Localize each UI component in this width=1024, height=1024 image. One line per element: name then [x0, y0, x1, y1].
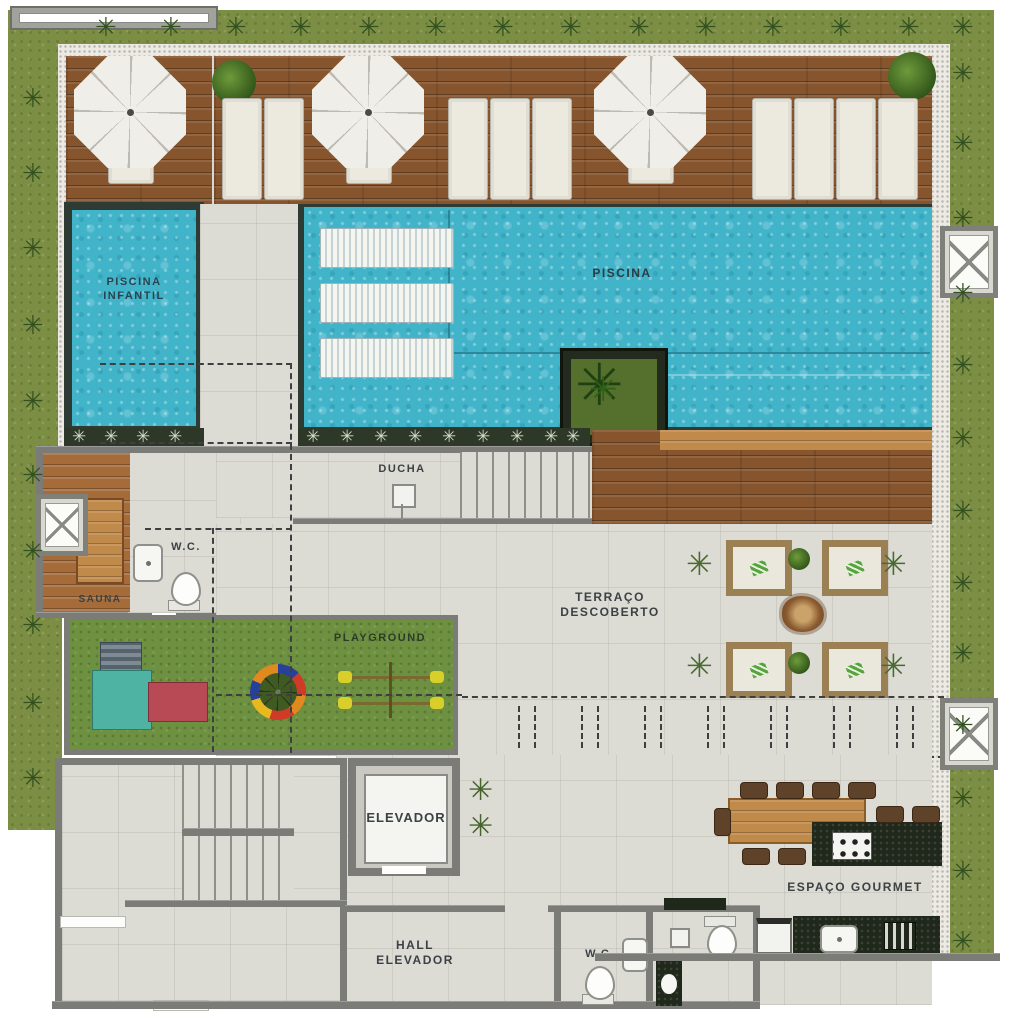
palm-plant-icon: ✳ — [22, 235, 44, 261]
in-pool-lounger — [320, 283, 454, 323]
pool-walkway — [200, 204, 300, 448]
wall — [52, 1001, 760, 1009]
cooktop-icon — [832, 832, 872, 860]
shower-valve-icon — [392, 484, 416, 508]
piscina-label: PISCINA — [570, 266, 674, 281]
palm-plant-icon: ✳ — [952, 130, 974, 156]
projection-line — [216, 694, 462, 696]
palm-plant-icon: ✳ — [952, 60, 974, 86]
palm-plant-icon: ✳ — [290, 14, 312, 40]
service-shaft-marker — [36, 494, 88, 556]
hedge-plant-icon: ✳ — [136, 428, 150, 445]
terrace-plant-icon: ✳ — [880, 650, 907, 682]
kids-pool — [72, 210, 196, 426]
projection-line — [100, 363, 292, 365]
wc-upper-label: W.C. — [158, 541, 214, 555]
stairs — [460, 452, 592, 518]
hedge-plant-icon: ✳ — [306, 428, 320, 445]
sauna-label: SAUNA — [60, 594, 140, 607]
leisure-floor-plan: ✳ ✳ SAUNA W.C. ♿ DUCHA TERRAÇO DESCOBERT… — [0, 0, 1024, 1024]
kitchen-counter — [793, 916, 940, 954]
palm-plant-icon: ✳ — [22, 462, 44, 488]
palm-plant-icon: ✳ — [425, 14, 447, 40]
pergola-bay-line — [896, 706, 914, 748]
palm-plant-icon: ✳ — [22, 765, 44, 791]
palm-plant-icon: ✳ — [952, 498, 974, 524]
hedge-plant-icon: ✳ — [340, 428, 354, 445]
espaco-gourmet-label: ESPAÇO GOURMET — [770, 880, 940, 895]
palm-plant-icon: ✳ — [952, 205, 974, 231]
hedge-plant-icon: ✳ — [168, 428, 182, 445]
wall — [595, 953, 1000, 961]
hall-elevador-label: HALL ELEVADOR — [345, 938, 485, 968]
piscina-infantil-line1: PISCINA — [84, 276, 184, 290]
seesaw-post — [389, 662, 392, 718]
pool-step-line — [448, 352, 930, 354]
terrace-armchair — [726, 540, 792, 596]
projection-line — [100, 442, 292, 444]
terraco-label-line1: TERRAÇO — [540, 590, 680, 605]
palm-plant-icon: ✳ — [952, 570, 974, 596]
deck-plant — [888, 52, 936, 100]
plant-icon: ✳ — [468, 812, 493, 842]
dining-chair — [912, 806, 940, 823]
palm-plant-icon: ✳ — [160, 14, 182, 40]
dining-chair — [848, 782, 876, 799]
pergola-bay-line — [833, 706, 851, 748]
hedge-plant-icon: ✳ — [104, 428, 118, 445]
shower-shelf — [664, 898, 726, 910]
palm-plant-icon: ✳ — [762, 14, 784, 40]
palm-plant-icon: ✳ — [22, 612, 44, 638]
hedge-plant-icon: ✳ — [544, 428, 558, 445]
palm-plant-icon: ✳ — [358, 14, 380, 40]
seesaw-seat — [430, 697, 444, 709]
seesaw-seat — [338, 671, 352, 683]
terrace-bush — [788, 652, 810, 674]
pergola-projection — [462, 696, 944, 758]
seesaw-seat — [338, 697, 352, 709]
palm-plant-icon: ✳ — [22, 160, 44, 186]
elevator-door-opening — [382, 866, 426, 874]
deck-lounger — [490, 98, 530, 200]
deck-lounger — [448, 98, 488, 200]
pergola-bay-line — [518, 706, 536, 748]
projection-line — [145, 528, 292, 530]
terraco-label: TERRAÇO DESCOBERTO — [540, 590, 680, 620]
palm-plant-icon: ✳ — [830, 14, 852, 40]
elevator-car: ELEVADOR — [364, 774, 448, 864]
carousel — [250, 664, 306, 720]
parasol-icon — [74, 56, 186, 168]
pergola-bay-line — [770, 706, 788, 748]
ducha-label: DUCHA — [360, 463, 444, 477]
hall-label-line2: ELEVADOR — [345, 953, 485, 968]
deck-lounger — [752, 98, 792, 200]
stair-rail — [182, 828, 294, 836]
hedge-plant-icon: ✳ — [566, 428, 580, 445]
deck-lounger — [878, 98, 918, 200]
hall-label-line1: HALL — [345, 938, 485, 953]
palm-plant-icon: ✳ — [952, 928, 974, 954]
hedge-plant-icon: ✳ — [408, 428, 422, 445]
piscina-infantil-line2: INFANTIL — [84, 290, 184, 304]
elevador-label: ELEVADOR — [366, 810, 446, 826]
terrace-plant-icon: ✳ — [686, 650, 713, 682]
plant-icon: ✳ — [468, 776, 493, 806]
projection-line — [212, 528, 214, 752]
palm-plant-icon: ✳ — [95, 14, 117, 40]
terrace-armchair — [822, 642, 888, 698]
palm-plant-icon: ✳ — [952, 785, 974, 811]
palm-plant-icon: ✳ — [695, 14, 717, 40]
palm-plant-icon: ✳ — [492, 14, 514, 40]
kitchen-sink-icon — [820, 925, 858, 953]
vanity-sink-icon — [661, 974, 677, 994]
dining-chair — [714, 808, 731, 836]
dining-chair — [812, 782, 840, 799]
palm-plant-icon: ✳ — [22, 85, 44, 111]
play-structure-deck — [92, 670, 152, 730]
seesaw-seat — [430, 671, 444, 683]
pergola-bay-line — [581, 706, 599, 748]
in-pool-lounger — [320, 338, 454, 378]
piscina-infantil-label: PISCINA INFANTIL — [84, 276, 184, 304]
dining-chair — [778, 848, 806, 865]
hedge-plant-icon: ✳ — [72, 428, 86, 445]
wall — [345, 905, 505, 912]
palm-plant-icon: ✳ — [22, 388, 44, 414]
dining-chair — [876, 806, 904, 823]
terrace-armchair — [822, 540, 888, 596]
deck-lounger — [794, 98, 834, 200]
grill-icon — [884, 922, 916, 950]
palm-plant-icon: ✳ — [952, 14, 974, 40]
palm-plant-icon: ✳ — [22, 312, 44, 338]
terrace-bush — [788, 548, 810, 570]
palm-plant-icon: ✳ — [952, 425, 974, 451]
toilet-icon — [171, 572, 201, 606]
dining-chair — [776, 782, 804, 799]
palm-tree-icon: ✳ — [589, 373, 618, 407]
refrigerator-icon — [756, 918, 792, 954]
palm-plant-icon: ✳ — [952, 352, 974, 378]
hedge-plant-icon: ✳ — [476, 428, 490, 445]
deck-lounger — [532, 98, 572, 200]
palm-plant-icon: ✳ — [952, 640, 974, 666]
toilet-icon — [585, 966, 615, 1000]
wall — [125, 900, 347, 907]
pergola-bay-line — [644, 706, 662, 748]
play-structure-slide — [148, 682, 208, 722]
deck-lounger — [836, 98, 876, 200]
deck-lounger — [222, 98, 262, 200]
palm-plant-icon: ✳ — [225, 14, 247, 40]
palm-plant-icon: ✳ — [952, 858, 974, 884]
palm-plant-icon: ✳ — [628, 14, 650, 40]
hedge-plant-icon: ✳ — [374, 428, 388, 445]
pool-ledge-line — [660, 374, 930, 376]
palm-plant-icon: ✳ — [22, 690, 44, 716]
shower-valve-icon — [670, 928, 690, 948]
terrace-plant-icon: ✳ — [686, 548, 713, 580]
palm-plant-icon: ✳ — [22, 538, 44, 564]
terraco-label-line2: DESCOBERTO — [540, 605, 680, 620]
pool-deck-step — [660, 430, 932, 450]
door-opening — [60, 916, 126, 928]
hedge-plant-icon: ✳ — [510, 428, 524, 445]
fire-pit — [782, 596, 824, 632]
in-pool-lounger — [320, 228, 454, 268]
wall — [554, 905, 561, 1005]
palm-plant-icon: ✳ — [952, 712, 974, 738]
shower-stem — [401, 504, 403, 520]
pergola-bay-line — [707, 706, 725, 748]
playground-label: PLAYGROUND — [318, 632, 442, 646]
palm-plant-icon: ✳ — [560, 14, 582, 40]
shaft-x-icon — [45, 503, 79, 547]
palm-plant-icon: ✳ — [898, 14, 920, 40]
wall — [548, 905, 760, 912]
palm-plant-icon: ✳ — [952, 280, 974, 306]
terrace-armchair — [726, 642, 792, 698]
deck-lounger — [264, 98, 304, 200]
dining-chair — [742, 848, 770, 865]
terrace-plant-icon: ✳ — [880, 548, 907, 580]
dining-chair — [740, 782, 768, 799]
hedge-plant-icon: ✳ — [442, 428, 456, 445]
